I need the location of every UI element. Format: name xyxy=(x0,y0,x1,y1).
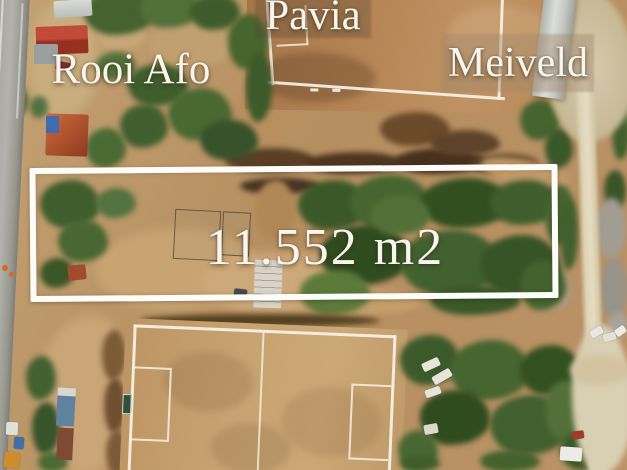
roof-segment-rust xyxy=(56,428,74,461)
road-edge-line xyxy=(16,3,23,118)
burnt-patch xyxy=(430,130,500,156)
bottom-football-field xyxy=(119,318,407,470)
car-white xyxy=(6,422,18,435)
traffic-cone xyxy=(9,272,14,277)
label-pavia: Pavia xyxy=(243,0,383,40)
roof-segment-blue xyxy=(56,396,76,427)
vegetation-patch xyxy=(30,96,48,118)
truck-white xyxy=(560,446,583,462)
dirt-smudge xyxy=(210,422,292,470)
vegetation-patch xyxy=(86,128,126,168)
building-white-shed xyxy=(53,0,92,18)
red-container xyxy=(572,430,585,440)
vegetation-patch xyxy=(480,450,540,470)
label-meiveld: Meiveld xyxy=(432,34,604,92)
building-rust-blue-roof xyxy=(54,388,78,463)
goal-mark xyxy=(310,88,318,91)
vegetation-patch xyxy=(246,52,272,122)
dirt-smudge xyxy=(162,350,254,414)
vegetation-patch xyxy=(560,200,578,270)
penalty-box-line xyxy=(348,383,391,461)
rock-patch xyxy=(600,258,627,318)
dirt-path xyxy=(570,355,627,385)
aerial-photo: Pavia Rooi Afo Meiveld 11.552 m2 xyxy=(0,0,627,470)
vegetation-patch xyxy=(26,356,56,400)
debris-strip xyxy=(102,330,126,380)
penalty-box-line xyxy=(129,366,172,442)
traffic-cone xyxy=(2,265,8,271)
label-parcel-area: 11.552 m2 xyxy=(175,214,475,282)
asphalt-road xyxy=(0,0,30,470)
label-rooi-afo: Rooi Afo xyxy=(36,46,226,94)
vegetation-patch xyxy=(400,455,440,470)
road-edge-line xyxy=(0,0,3,134)
vegetation-patch xyxy=(120,104,168,148)
goal xyxy=(122,394,132,414)
vegetation-patch xyxy=(200,120,258,160)
goal-mark xyxy=(332,89,340,92)
blue-tarp xyxy=(46,116,59,133)
car-blue xyxy=(14,437,25,450)
bus-orange xyxy=(3,451,21,469)
